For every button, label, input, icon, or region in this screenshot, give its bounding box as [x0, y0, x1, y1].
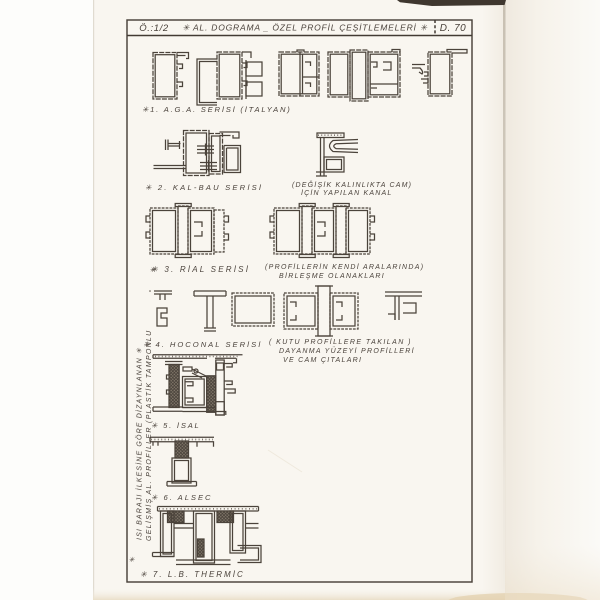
svg-text:✳ 4. HOCONAL SERİSİ: ✳ 4. HOCONAL SERİSİ — [143, 340, 262, 349]
svg-text:✳ 6. ALSEC: ✳ 6. ALSEC — [151, 493, 213, 502]
svg-text:BİRLEŞME OLANAKLARI: BİRLEŞME OLANAKLARI — [279, 272, 385, 280]
svg-text:✳ 2. KAL-BAU SERİSİ: ✳ 2. KAL-BAU SERİSİ — [145, 183, 263, 192]
svg-text:DAYANMA YÜZEYİ PROFİLLERİ: DAYANMA YÜZEYİ PROFİLLERİ — [279, 347, 415, 355]
svg-text:✳ 5. İSAL: ✳ 5. İSAL — [151, 421, 201, 430]
svg-text:( KUTU PROFİLLERE TAKILAN ): ( KUTU PROFİLLERE TAKILAN ) — [269, 338, 412, 346]
svg-text:İÇİN YAPILAN KANAL: İÇİN YAPILAN KANAL — [301, 189, 393, 197]
svg-text:D. 70: D. 70 — [440, 23, 466, 34]
svg-text:VE CAM ÇITALARI: VE CAM ÇITALARI — [283, 357, 362, 364]
svg-text:✳ AL. DOGRAMA _ ÖZEL PROFİL ÇE: ✳ AL. DOGRAMA _ ÖZEL PROFİL ÇEŞİTLEMELER… — [182, 23, 428, 33]
svg-text:ISI BARAJI İLKESİNE GÖRE Dİ: ISI BARAJI İLKESİNE GÖRE DİZAYNLANAN ✳ — [136, 347, 144, 540]
svg-text:Ö.:1/2: Ö.:1/2 — [139, 23, 169, 34]
svg-text:✳ 3. RİAL SERİSİ: ✳ 3. RİAL SERİSİ — [151, 265, 250, 274]
svg-text:✳ 7. L.B. THERMİC: ✳ 7. L.B. THERMİC — [140, 570, 245, 579]
svg-text:(DEĞİŞİK KALINLIKTA CAM): (DEĞİŞİK KALINLIKTA CAM) — [292, 180, 412, 189]
svg-text:(PROFİLLERİN KENDİ ARALARINDA): (PROFİLLERİN KENDİ ARALARINDA) — [265, 263, 424, 271]
svg-text:✳1. A.G.A. SERİSİ (İTALYAN): ✳1. A.G.A. SERİSİ (İTALYAN) — [142, 105, 292, 114]
svg-text:GELİŞMİŞ AL. PROFİLLER (PLAS: GELİŞMİŞ AL. PROFİLLER (PLASTİK TAMPONLU — [145, 330, 153, 542]
